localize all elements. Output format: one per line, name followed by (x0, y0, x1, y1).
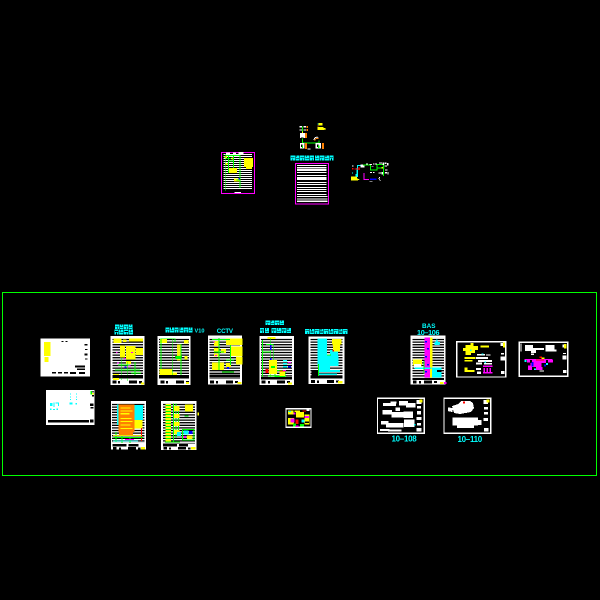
svg-text:V10: V10 (195, 329, 205, 335)
svg-text:10–106: 10–106 (417, 328, 439, 337)
svg-text:10–108: 10–108 (392, 435, 418, 444)
svg-text:CCTV: CCTV (217, 328, 234, 335)
svg-text:10–110: 10–110 (458, 435, 483, 444)
